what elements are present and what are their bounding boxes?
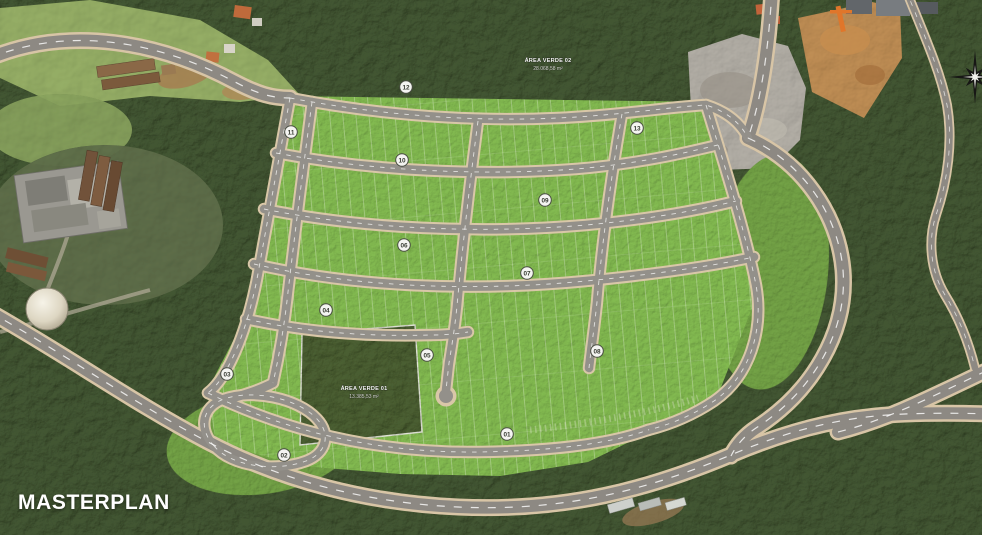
svg-text:ÁREA VERDE 02: ÁREA VERDE 02 — [525, 57, 572, 64]
svg-text:09: 09 — [541, 197, 549, 204]
svg-text:12: 12 — [402, 84, 410, 91]
quadra-marker[interactable]: 12 — [400, 81, 413, 94]
svg-text:13.385,53 m²: 13.385,53 m² — [349, 394, 379, 400]
svg-text:07: 07 — [523, 270, 531, 277]
quadra-marker[interactable]: 07 — [521, 267, 534, 280]
quadra-marker[interactable]: 01 — [501, 428, 514, 441]
quadra-marker[interactable]: 06 — [398, 239, 411, 252]
svg-text:05: 05 — [423, 352, 431, 359]
svg-text:11: 11 — [288, 129, 295, 136]
svg-text:13: 13 — [633, 125, 641, 132]
svg-text:01: 01 — [503, 431, 511, 438]
quadra-marker[interactable]: 11 — [285, 126, 298, 139]
quadra-marker[interactable]: 02 — [278, 449, 291, 462]
quadra-marker[interactable]: 13 — [631, 122, 644, 135]
map-canvas: ÁREA VERDE 01 13.385,53 m² ÁREA VERDE 02… — [0, 0, 982, 535]
svg-text:02: 02 — [280, 452, 288, 459]
quadra-marker[interactable]: 08 — [591, 345, 604, 358]
satellite-masterplan-view: ÁREA VERDE 01 13.385,53 m² ÁREA VERDE 02… — [0, 0, 982, 535]
svg-text:04: 04 — [322, 307, 330, 314]
quadra-marker[interactable]: 03 — [221, 368, 234, 381]
storage-dome — [26, 288, 68, 330]
masterplan-title: MASTERPLAN — [18, 491, 170, 515]
svg-text:ÁREA VERDE 01: ÁREA VERDE 01 — [341, 385, 388, 392]
quadra-marker[interactable]: 05 — [421, 349, 434, 362]
quadra-marker[interactable]: 04 — [320, 304, 333, 317]
svg-text:03: 03 — [223, 371, 231, 378]
svg-text:10: 10 — [398, 157, 406, 164]
quadra-marker[interactable]: 09 — [539, 194, 552, 207]
quadra-marker[interactable]: 10 — [396, 154, 409, 167]
svg-text:28.068,58 m²: 28.068,58 m² — [533, 66, 563, 72]
svg-text:08: 08 — [593, 348, 601, 355]
svg-text:06: 06 — [400, 242, 408, 249]
